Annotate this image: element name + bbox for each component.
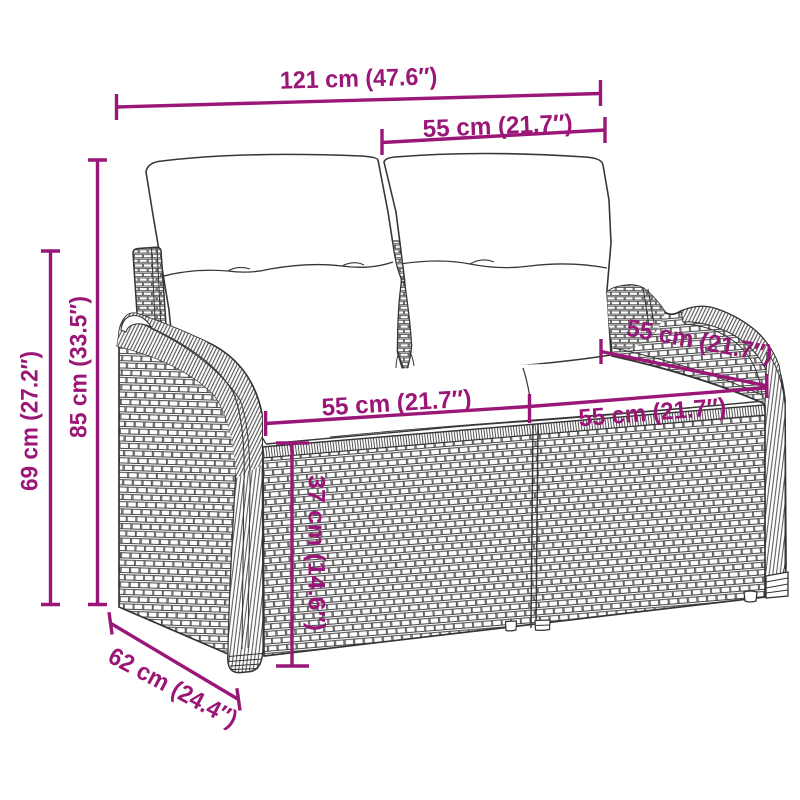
svg-text:121 cm (47.6″): 121 cm (47.6″)	[279, 63, 437, 94]
svg-text:69 cm (27.2″): 69 cm (27.2″)	[17, 351, 44, 491]
svg-text:37 cm (14.6″): 37 cm (14.6″)	[303, 475, 330, 631]
svg-text:85 cm (33.5″): 85 cm (33.5″)	[66, 296, 93, 438]
